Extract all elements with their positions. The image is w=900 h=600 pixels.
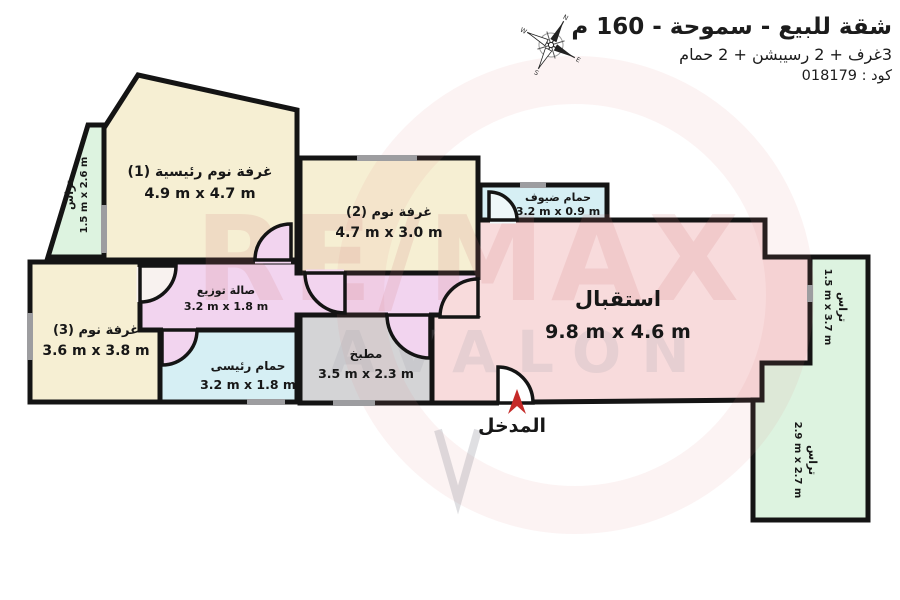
label-reception: استقبال bbox=[575, 287, 661, 311]
floorplan-page: RE/MAX AVALON bbox=[0, 0, 900, 600]
page-title: شقة للبيع - سموحة - 160 م bbox=[571, 14, 892, 42]
compass-rose-icon: N E S W bbox=[516, 10, 586, 80]
label-bedroom2: غرفة نوم (2) bbox=[346, 205, 432, 220]
dims-reception: 9.8 m x 4.6 m bbox=[545, 321, 691, 343]
svg-text:تراس: تراس bbox=[836, 292, 849, 322]
dims-kitchen: 3.5 m x 2.3 m bbox=[318, 366, 414, 381]
compass-s: S bbox=[533, 68, 540, 77]
label-master-bedroom: غرفة نوم رئيسية (1) bbox=[128, 164, 273, 180]
label-bedroom3: غرفة نوم (3) bbox=[53, 323, 139, 338]
compass-w: W bbox=[519, 26, 529, 36]
dims-hall: 3.2 m x 1.8 m bbox=[184, 300, 268, 313]
svg-text:تراس: تراس bbox=[63, 180, 76, 210]
svg-text:تراس: تراس bbox=[806, 445, 819, 475]
floorplan-canvas: RE/MAX AVALON bbox=[0, 0, 900, 600]
label-hall: صالة توزيع bbox=[197, 284, 255, 297]
label-kitchen: مطبخ bbox=[350, 347, 383, 361]
dims-bedroom3: 3.6 m x 3.8 m bbox=[42, 343, 149, 359]
header: شقة للبيع - سموحة - 160 م 3غرف + 2 رسيبش… bbox=[571, 14, 892, 84]
watermark-balloon-basket bbox=[438, 430, 478, 500]
listing-code: كود : 018179 bbox=[571, 68, 892, 84]
dims-guest-bathroom: 3.2 m x 0.9 m bbox=[516, 205, 600, 218]
room-reception bbox=[432, 220, 810, 403]
compass-e: E bbox=[574, 55, 581, 64]
label-master-bathroom: حمام رئيسى bbox=[211, 359, 286, 374]
label-guest-bathroom: حمام ضيوف bbox=[525, 191, 591, 204]
svg-text:2.9 m x 2.7 m: 2.9 m x 2.7 m bbox=[792, 422, 803, 499]
svg-text:1.5 m x 2.6 m: 1.5 m x 2.6 m bbox=[79, 157, 90, 234]
room-terrace-left bbox=[48, 125, 104, 257]
dims-bedroom2: 4.7 m x 3.0 m bbox=[335, 225, 442, 241]
page-subtitle: 3غرف + 2 رسيبشن + 2 حمام bbox=[571, 45, 892, 64]
svg-text:1.5 m x 3.7 m: 1.5 m x 3.7 m bbox=[822, 269, 833, 346]
compass-n: N bbox=[562, 13, 570, 22]
dims-master-bedroom: 4.9 m x 4.7 m bbox=[144, 186, 255, 202]
dims-master-bathroom: 3.2 m x 1.8 m bbox=[200, 377, 296, 392]
label-entrance: المدخل bbox=[478, 415, 546, 437]
